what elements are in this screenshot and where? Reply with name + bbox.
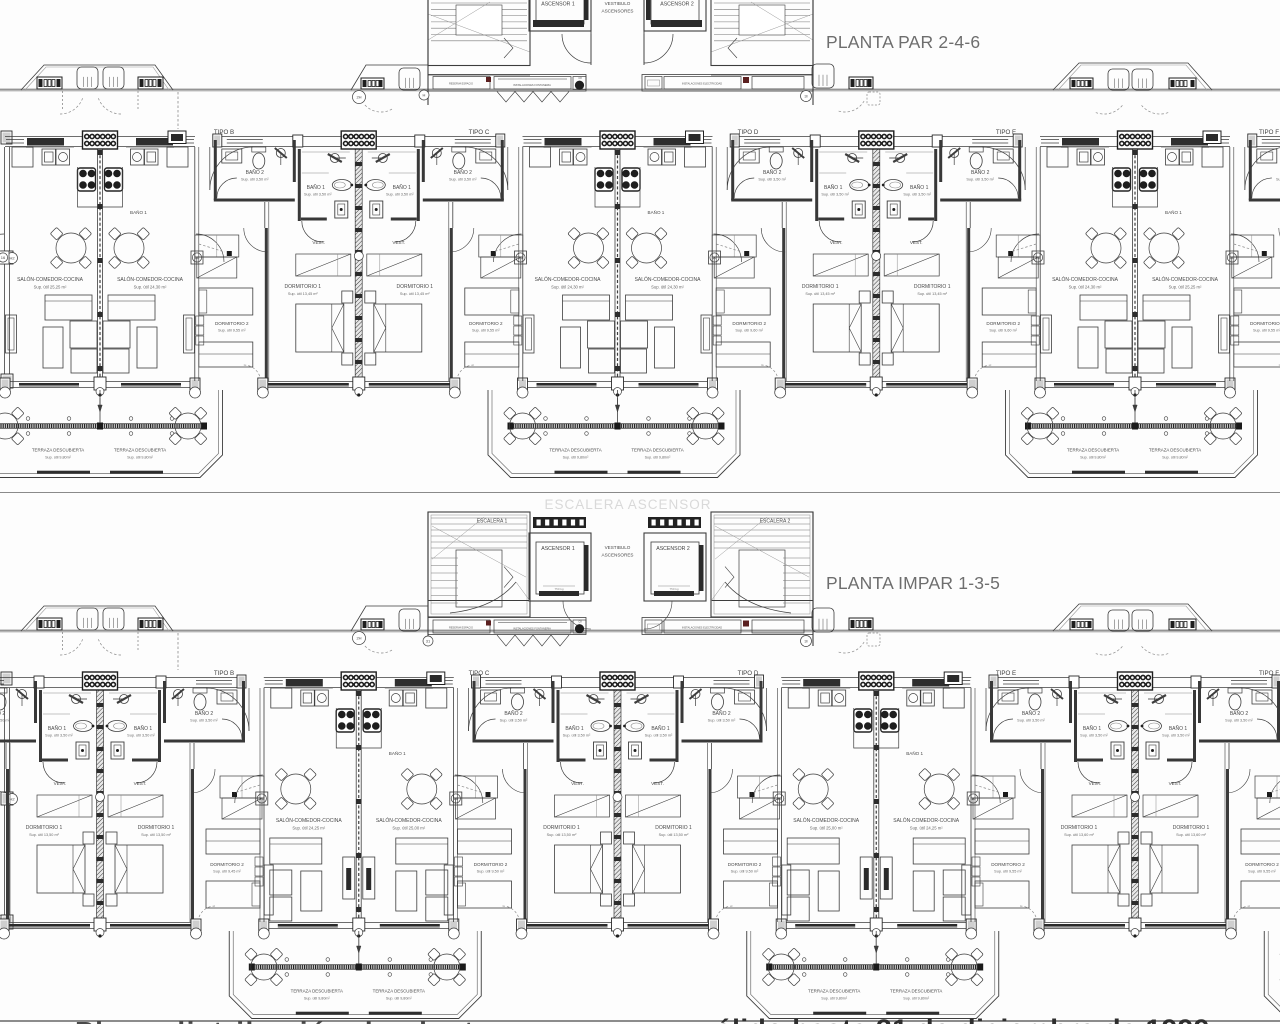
svg-text:Sup. útil 9,55 m²: Sup. útil 9,55 m² <box>1253 329 1280 333</box>
svg-text:SALÓN-COMEDOR-COCINA: SALÓN-COMEDOR-COCINA <box>276 817 343 824</box>
svg-text:Sup. útil 13,45 m²: Sup. útil 13,45 m² <box>288 292 318 296</box>
svg-text:VEST.: VEST. <box>910 240 923 245</box>
svg-text:PLANTA PAR 2-4-6: PLANTA PAR 2-4-6 <box>826 32 980 52</box>
svg-text:ESCALERA 2: ESCALERA 2 <box>760 519 791 525</box>
svg-text:BAÑO 1: BAÑO 1 <box>1165 209 1182 215</box>
svg-text:BAÑO 1: BAÑO 1 <box>1083 725 1102 732</box>
svg-text:Sup. útil 3,50 m²: Sup. útil 3,50 m² <box>386 193 414 197</box>
svg-text:SALÓN-COMEDOR-COCINA: SALÓN-COMEDOR-COCINA <box>1052 276 1119 283</box>
svg-text:SALÓN-COMEDOR-COCINA: SALÓN-COMEDOR-COCINA <box>635 276 702 283</box>
svg-text:BAÑO 2: BAÑO 2 <box>971 169 990 176</box>
svg-text:INSTALACIONES ELECTRICIDAD: INSTALACIONES ELECTRICIDAD <box>682 82 722 86</box>
svg-text:Sup. útil 9,55 m²: Sup. útil 9,55 m² <box>218 329 246 333</box>
svg-text:BAÑO 2: BAÑO 2 <box>504 710 523 717</box>
svg-text:750 kg: 750 kg <box>669 587 678 591</box>
svg-text:Sup. útil 3,50 m²: Sup. útil 3,50 m² <box>1017 719 1045 723</box>
svg-text:DORMITORIO 1: DORMITORIO 1 <box>26 825 63 831</box>
svg-text:Sup. útil 9,80m²: Sup. útil 9,80m² <box>821 997 848 1001</box>
svg-text:BAÑO 1: BAÑO 1 <box>134 725 153 732</box>
svg-text:DORMITORIO 2: DORMITORIO 2 <box>728 862 762 867</box>
svg-text:Sup. útil 3,50 m²: Sup. útil 3,50 m² <box>903 193 931 197</box>
svg-text:750 kg: 750 kg <box>554 587 563 591</box>
svg-text:DORMITORIO 2: DORMITORIO 2 <box>986 321 1020 326</box>
svg-text:BAÑO 2: BAÑO 2 <box>1230 710 1249 717</box>
svg-text:BAÑO 1: BAÑO 1 <box>648 209 665 215</box>
svg-text:TERRAZA DESCUBIERTA: TERRAZA DESCUBIERTA <box>114 448 166 453</box>
svg-text:BAÑO 1: BAÑO 1 <box>307 184 326 191</box>
svg-text:Sup. útil 9,50 m²: Sup. útil 9,50 m² <box>477 870 505 874</box>
svg-text:Sup. útil 13,50 m²: Sup. útil 13,50 m² <box>141 833 171 837</box>
svg-text:Sup. útil 24,25 m²: Sup. útil 24,25 m² <box>910 826 943 831</box>
svg-text:3I: 3I <box>804 639 807 644</box>
svg-text:válido hasta 31 de diciembre d: válido hasta 31 de diciembre de 1999 <box>700 1014 1210 1024</box>
svg-text:ASCENSOR 1: ASCENSOR 1 <box>541 546 575 552</box>
svg-text:DORMITORIO 1: DORMITORIO 1 <box>285 284 322 290</box>
svg-text:DORMITORIO 1: DORMITORIO 1 <box>655 825 692 831</box>
svg-text:Sup. útil 3,50 m²: Sup. útil 3,50 m² <box>758 178 786 182</box>
svg-text:Sup. útil 9,60 m²: Sup. útil 9,60 m² <box>735 329 763 333</box>
svg-text:ESCALERA ASCENSOR: ESCALERA ASCENSOR <box>544 497 711 512</box>
svg-text:BAÑO 2: BAÑO 2 <box>0 710 5 717</box>
svg-text:16: 16 <box>454 796 459 801</box>
svg-text:ESCALERA 1: ESCALERA 1 <box>477 519 508 525</box>
svg-text:SALÓN-COMEDOR-COCINA: SALÓN-COMEDOR-COCINA <box>793 817 860 824</box>
svg-text:H2: H2 <box>9 797 15 802</box>
svg-text:INSTALACIONES FONTANERIA: INSTALACIONES FONTANERIA <box>513 627 551 631</box>
svg-text:Sup. útil 9,80m²: Sup. útil 9,80m² <box>645 456 672 460</box>
svg-text:16: 16 <box>195 255 200 260</box>
svg-text:TERRAZA DESCUBIERTA: TERRAZA DESCUBIERTA <box>631 448 683 453</box>
svg-text:Sup. útil 3,50 m²: Sup. útil 3,50 m² <box>190 719 218 723</box>
svg-text:Sup. útil 9,80m²: Sup. útil 9,80m² <box>386 997 413 1001</box>
svg-text:VEST.: VEST. <box>651 781 664 786</box>
svg-text:BAÑO 2: BAÑO 2 <box>195 710 214 717</box>
svg-text:Sup. útil 9,80m²: Sup. útil 9,80m² <box>127 456 154 460</box>
svg-text:BAÑO 2: BAÑO 2 <box>712 710 731 717</box>
svg-text:3I: 3I <box>804 94 807 99</box>
svg-text:DORMITORIO 1: DORMITORIO 1 <box>914 284 951 290</box>
svg-text:SALÓN-COMEDOR-COCINA: SALÓN-COMEDOR-COCINA <box>376 817 443 824</box>
svg-text:BAÑO 1: BAÑO 1 <box>651 725 670 732</box>
svg-text:Sup. útil 25,00 m²: Sup. útil 25,00 m² <box>810 826 843 831</box>
svg-text:TERRAZA DESCUBIERTA: TERRAZA DESCUBIERTA <box>549 448 601 453</box>
svg-text:DORMITORIO 2: DORMITORIO 2 <box>732 321 766 326</box>
svg-text:Sup. útil 3,50 m²: Sup. útil 3,50 m² <box>563 734 591 738</box>
svg-text:16: 16 <box>1 255 6 260</box>
svg-text:TIPO B: TIPO B <box>214 670 234 677</box>
svg-text:2H: 2H <box>356 95 361 100</box>
svg-text:BAÑO 1: BAÑO 1 <box>389 750 406 756</box>
svg-text:SALÓN-COMEDOR-COCINA: SALÓN-COMEDOR-COCINA <box>535 276 602 283</box>
svg-text:C8: C8 <box>578 620 582 624</box>
svg-text:Sup. útil 3,50 m²: Sup. útil 3,50 m² <box>1162 734 1190 738</box>
svg-text:BAÑO 2: BAÑO 2 <box>246 169 265 176</box>
svg-text:RESERVA ESPACIO: RESERVA ESPACIO <box>449 626 473 630</box>
svg-text:16: 16 <box>712 255 717 260</box>
svg-text:TERRAZA DESCUBIERTA: TERRAZA DESCUBIERTA <box>808 989 860 994</box>
svg-text:BAÑO 1: BAÑO 1 <box>824 184 843 191</box>
svg-text:DORMITORIO 2: DORMITORIO 2 <box>210 862 244 867</box>
svg-text:31: 31 <box>426 639 431 644</box>
svg-text:INSTALACIONES ELECTRICIDAD: INSTALACIONES ELECTRICIDAD <box>682 626 722 630</box>
svg-text:BAÑO 1: BAÑO 1 <box>906 750 923 756</box>
svg-text:2H: 2H <box>356 636 361 641</box>
svg-text:PLANTA IMPAR 1-3-5: PLANTA IMPAR 1-3-5 <box>826 573 1000 593</box>
svg-text:H2: H2 <box>9 256 15 261</box>
svg-text:Sup. útil 3,50 m²: Sup. útil 3,50 m² <box>304 193 332 197</box>
svg-text:DORMITORIO 1: DORMITORIO 1 <box>138 825 175 831</box>
svg-text:TERRAZA DESCUBIERTA: TERRAZA DESCUBIERTA <box>32 448 84 453</box>
svg-text:RESERVA ESPACIO: RESERVA ESPACIO <box>449 82 473 86</box>
svg-text:BAÑO 1: BAÑO 1 <box>393 184 412 191</box>
svg-text:Sup. útil 13,45 m²: Sup. útil 13,45 m² <box>917 292 947 296</box>
svg-text:ASCENSORES: ASCENSORES <box>602 9 634 14</box>
svg-text:Sup. útil 3,50 m²: Sup. útil 3,50 m² <box>241 178 269 182</box>
svg-text:Sup. útil 9,60 m²: Sup. útil 9,60 m² <box>989 329 1017 333</box>
svg-text:BAÑO 1: BAÑO 1 <box>130 209 147 215</box>
svg-text:Sup. útil 13,60 m²: Sup. útil 13,60 m² <box>1176 833 1206 837</box>
svg-text:DORMITORIO 2: DORMITORIO 2 <box>469 321 503 326</box>
svg-text:DORMITORIO 1: DORMITORIO 1 <box>397 284 434 290</box>
svg-text:TERRAZA DESCUBIERTA: TERRAZA DESCUBIERTA <box>890 989 942 994</box>
svg-text:BAÑO 1: BAÑO 1 <box>910 184 929 191</box>
svg-text:Sup. útil 24,30 m²: Sup. útil 24,30 m² <box>134 285 167 290</box>
svg-text:VEST.: VEST. <box>1169 781 1182 786</box>
svg-text:SALÓN-COMEDOR-COCINA: SALÓN-COMEDOR-COCINA <box>117 276 184 283</box>
svg-text:SALÓN-COMEDOR-COCINA: SALÓN-COMEDOR-COCINA <box>1152 276 1219 283</box>
svg-text:VESTIBULO: VESTIBULO <box>605 545 631 550</box>
svg-text:Sup. útil 9,55 m²: Sup. útil 9,55 m² <box>472 329 500 333</box>
svg-text:TERRAZA DESCUBIERTA: TERRAZA DESCUBIERTA <box>291 989 343 994</box>
svg-text:DORMITORIO 1: DORMITORIO 1 <box>1061 825 1098 831</box>
svg-text:Sup. útil 3,50 m²: Sup. útil 3,50 m² <box>45 734 73 738</box>
svg-text:Sup. útil 24,25 m²: Sup. útil 24,25 m² <box>292 826 325 831</box>
svg-text:Sup. útil 3,50 m²: Sup. útil 3,50 m² <box>500 719 528 723</box>
svg-text:TIPO F: TIPO F <box>1259 129 1279 136</box>
svg-text:TIPO E: TIPO E <box>996 670 1016 677</box>
svg-text:VEST.: VEST. <box>134 781 147 786</box>
svg-text:Sup. útil 9,45 m²: Sup. útil 9,45 m² <box>213 870 241 874</box>
svg-text:Sup. útil 25,25 m²: Sup. útil 25,25 m² <box>34 285 67 290</box>
svg-text:ASCENSORES: ASCENSORES <box>602 553 634 558</box>
svg-text:Sup. útil 13,60 m²: Sup. útil 13,60 m² <box>1064 833 1094 837</box>
svg-text:DORMITORIO 1: DORMITORIO 1 <box>543 825 580 831</box>
svg-text:ASCENSOR 2: ASCENSOR 2 <box>660 2 694 8</box>
svg-text:Sup. útil 9,55 m²: Sup. útil 9,55 m² <box>1248 870 1276 874</box>
svg-text:Sup. útil 9,80m²: Sup. útil 9,80m² <box>903 997 930 1001</box>
svg-text:TIPO C: TIPO C <box>469 129 490 136</box>
svg-text:Sup. útil 3,50 m²: Sup. útil 3,50 m² <box>1225 719 1253 723</box>
svg-text:DORMITORIO 2: DORMITORIO 2 <box>474 862 508 867</box>
svg-text:Sup. útil 3,50 m²: Sup. útil 3,50 m² <box>127 734 155 738</box>
svg-text:Sup. útil 9,80m²: Sup. útil 9,80m² <box>45 456 72 460</box>
svg-text:H: H <box>423 93 426 98</box>
svg-text:SALÓN-COMEDOR-COCINA: SALÓN-COMEDOR-COCINA <box>893 817 960 824</box>
svg-text:DORMITORIO 2: DORMITORIO 2 <box>215 321 249 326</box>
svg-text:VEST.: VEST. <box>1089 781 1102 786</box>
svg-text:Sup. útil 9,50 m²: Sup. útil 9,50 m² <box>731 870 759 874</box>
svg-text:Sup. útil 13,50 m²: Sup. útil 13,50 m² <box>29 833 59 837</box>
svg-text:C8: C8 <box>578 76 582 80</box>
svg-text:Sup. útil 25,25 m²: Sup. útil 25,25 m² <box>1169 285 1202 290</box>
svg-text:16: 16 <box>1230 255 1235 260</box>
svg-text:Sup. útil 24,30 m²: Sup. útil 24,30 m² <box>1069 285 1102 290</box>
svg-text:Plano distribución de plantas: Plano distribución de plantas <box>75 1016 509 1024</box>
svg-text:16: 16 <box>971 796 976 801</box>
svg-text:Sup. útil 9,55 m²: Sup. útil 9,55 m² <box>994 870 1022 874</box>
svg-text:DORMITORIO 1: DORMITORIO 1 <box>1173 825 1210 831</box>
svg-text:BAÑO 2: BAÑO 2 <box>1022 710 1041 717</box>
svg-text:VEST.: VEST. <box>571 781 584 786</box>
svg-text:ASCENSOR 1: ASCENSOR 1 <box>541 2 575 8</box>
svg-text:Sup. útil 25,00 m²: Sup. útil 25,00 m² <box>392 826 425 831</box>
svg-text:Sup. útil 3,50 m²: Sup. útil 3,50 m² <box>0 719 11 723</box>
svg-text:Sup. útil 3,50 m²: Sup. útil 3,50 m² <box>1080 734 1108 738</box>
svg-text:Sup. útil 3,50 m²: Sup. útil 3,50 m² <box>966 178 994 182</box>
svg-text:Sup. útil 13,50 m²: Sup. útil 13,50 m² <box>659 833 689 837</box>
svg-text:Sup. útil 3,50 m²: Sup. útil 3,50 m² <box>821 193 849 197</box>
svg-text:TERRAZA DESCUBIERTA: TERRAZA DESCUBIERTA <box>1149 448 1201 453</box>
svg-text:Sup. útil 3,50 m²: Sup. útil 3,50 m² <box>645 734 673 738</box>
svg-text:Sup. útil 13,45 m²: Sup. útil 13,45 m² <box>805 292 835 296</box>
svg-text:DORMITORIO 1: DORMITORIO 1 <box>802 284 839 290</box>
svg-text:TERRAZA DESCUBIERTA: TERRAZA DESCUBIERTA <box>1067 448 1119 453</box>
svg-text:VESTIBULO: VESTIBULO <box>605 1 631 6</box>
svg-text:INSTALACIONES FONTANERIA: INSTALACIONES FONTANERIA <box>513 83 551 87</box>
svg-text:Sup. útil 3,50 m²: Sup. útil 3,50 m² <box>708 719 736 723</box>
svg-text:VEST.: VEST. <box>830 240 843 245</box>
svg-text:VEST.: VEST. <box>312 240 325 245</box>
svg-text:Sup. útil 3,50 m²: Sup. útil 3,50 m² <box>449 178 477 182</box>
svg-text:Sup. útil 9,80m²: Sup. útil 9,80m² <box>1162 456 1189 460</box>
svg-text:BAÑO 2: BAÑO 2 <box>454 169 473 176</box>
svg-text:SALÓN-COMEDOR-COCINA: SALÓN-COMEDOR-COCINA <box>17 276 84 283</box>
svg-text:BAÑO 1: BAÑO 1 <box>48 725 67 732</box>
svg-text:Sup. útil 24,30 m²: Sup. útil 24,30 m² <box>651 285 684 290</box>
svg-text:Sup. útil 9,80m²: Sup. útil 9,80m² <box>304 997 331 1001</box>
svg-text:DORMITORIO 2: DORMITORIO 2 <box>1250 321 1280 326</box>
svg-text:Sup. útil 3,50 m²: Sup. útil 3,50 m² <box>1276 178 1280 182</box>
svg-text:DORMITORIO 2: DORMITORIO 2 <box>1245 862 1279 867</box>
svg-text:VEST.: VEST. <box>54 781 67 786</box>
svg-text:Sup. útil 24,30 m²: Sup. útil 24,30 m² <box>551 285 584 290</box>
svg-text:BAÑO 1: BAÑO 1 <box>1169 725 1188 732</box>
svg-text:VEST.: VEST. <box>392 240 405 245</box>
svg-text:TIPO D: TIPO D <box>738 129 759 136</box>
svg-text:BAÑO 2: BAÑO 2 <box>763 169 782 176</box>
svg-text:Sup. útil 9,80m²: Sup. útil 9,80m² <box>1080 456 1107 460</box>
svg-text:Sup. útil 9,80m²: Sup. útil 9,80m² <box>563 456 590 460</box>
svg-text:TERRAZA DESCUBIERTA: TERRAZA DESCUBIERTA <box>373 989 425 994</box>
svg-text:Sup. útil 13,50 m²: Sup. útil 13,50 m² <box>547 833 577 837</box>
svg-text:ASCENSOR 2: ASCENSOR 2 <box>656 546 690 552</box>
svg-text:BAÑO 1: BAÑO 1 <box>565 725 584 732</box>
svg-text:DORMITORIO 2: DORMITORIO 2 <box>991 862 1025 867</box>
svg-text:Sup. útil 13,45 m²: Sup. útil 13,45 m² <box>400 292 430 296</box>
